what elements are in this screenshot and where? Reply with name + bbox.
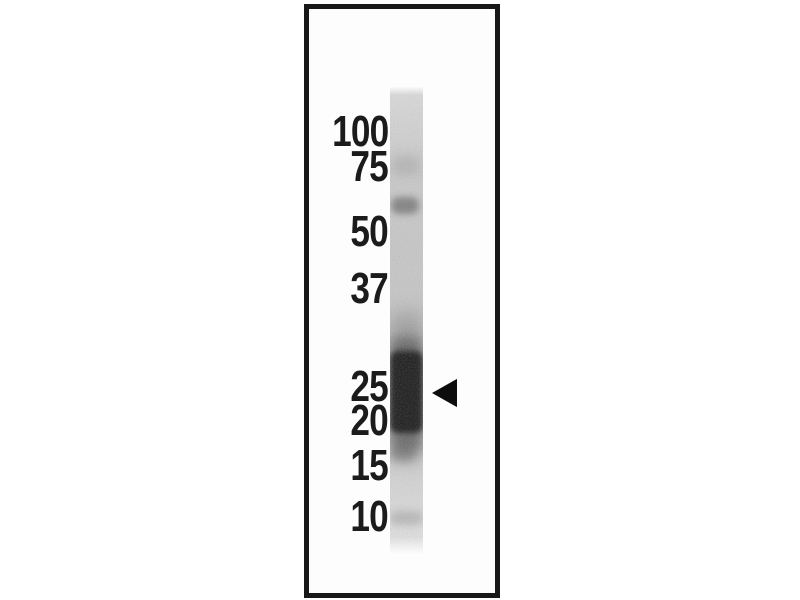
protein-band-main (390, 351, 423, 433)
mw-marker-label-15: 15 (350, 444, 388, 488)
mw-marker-label-50: 50 (350, 210, 388, 254)
mw-marker-label-37: 37 (350, 267, 388, 311)
blot-lane (390, 87, 423, 553)
mw-marker-label-10: 10 (350, 495, 388, 539)
protein-band (391, 197, 419, 214)
mw-marker-label-75: 75 (350, 145, 388, 189)
protein-band (392, 155, 420, 175)
mw-marker-label-20: 20 (350, 399, 388, 443)
blot-figure: 100 75 50 37 25 20 15 10 (0, 0, 800, 600)
protein-band (390, 447, 415, 462)
protein-band (390, 511, 423, 525)
